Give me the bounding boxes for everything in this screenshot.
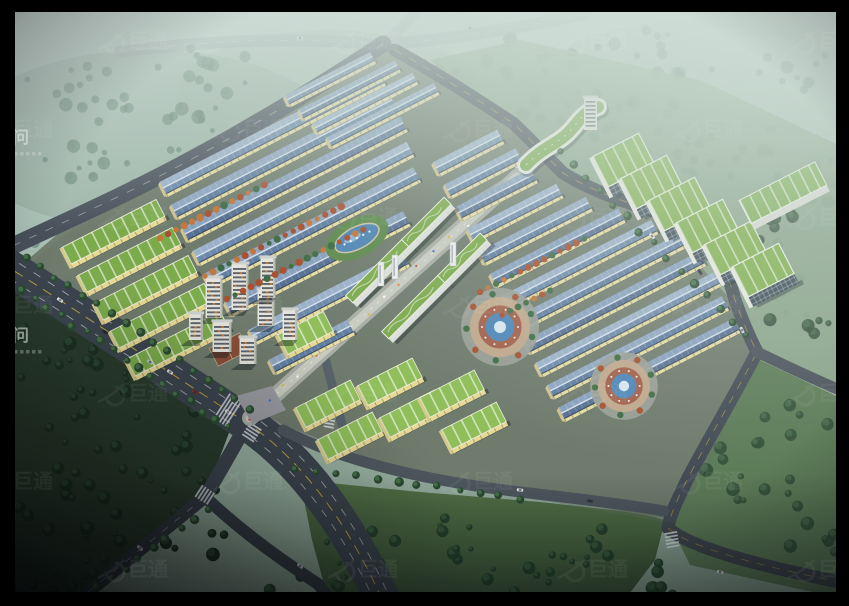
svg-text:巨通: 巨通 — [358, 206, 398, 229]
svg-text:巨通: 巨通 — [128, 382, 168, 405]
svg-text:巨通: 巨通 — [473, 118, 513, 141]
svg-text:巨通: 巨通 — [13, 294, 53, 317]
industrial-park-aerial-rendering: 巨通巨通巨通巨通巨通巨通巨通巨通巨通巨通巨通巨通巨通巨通巨通巨通巨通巨通巨通巨通… — [0, 0, 849, 606]
svg-text:巨通: 巨通 — [588, 382, 628, 405]
svg-text:巨通: 巨通 — [588, 206, 628, 229]
svg-text:巨通: 巨通 — [358, 558, 398, 581]
svg-text:巨通: 巨通 — [128, 30, 168, 53]
svg-text:巨通: 巨通 — [358, 30, 398, 53]
svg-text:巨通: 巨通 — [703, 294, 743, 317]
svg-text:巨通: 巨通 — [703, 470, 743, 493]
svg-text:巨通: 巨通 — [473, 470, 513, 493]
svg-text:巨通: 巨通 — [13, 470, 53, 493]
svg-text:巨通: 巨通 — [128, 206, 168, 229]
svg-text:巨通: 巨通 — [703, 118, 743, 141]
svg-text:巨通: 巨通 — [128, 558, 168, 581]
aerial-rendering-frame: 巨通巨通巨通巨通巨通巨通巨通巨通巨通巨通巨通巨通巨通巨通巨通巨通巨通巨通巨通巨通… — [0, 0, 849, 606]
svg-text:巨通: 巨通 — [588, 558, 628, 581]
svg-text:巨通: 巨通 — [358, 382, 398, 405]
svg-text:巨通: 巨通 — [243, 294, 283, 317]
svg-text:巨通: 巨通 — [243, 470, 283, 493]
svg-text:巨通: 巨通 — [588, 30, 628, 53]
svg-text:巨通: 巨通 — [473, 294, 513, 317]
svg-text:巨通: 巨通 — [243, 118, 283, 141]
